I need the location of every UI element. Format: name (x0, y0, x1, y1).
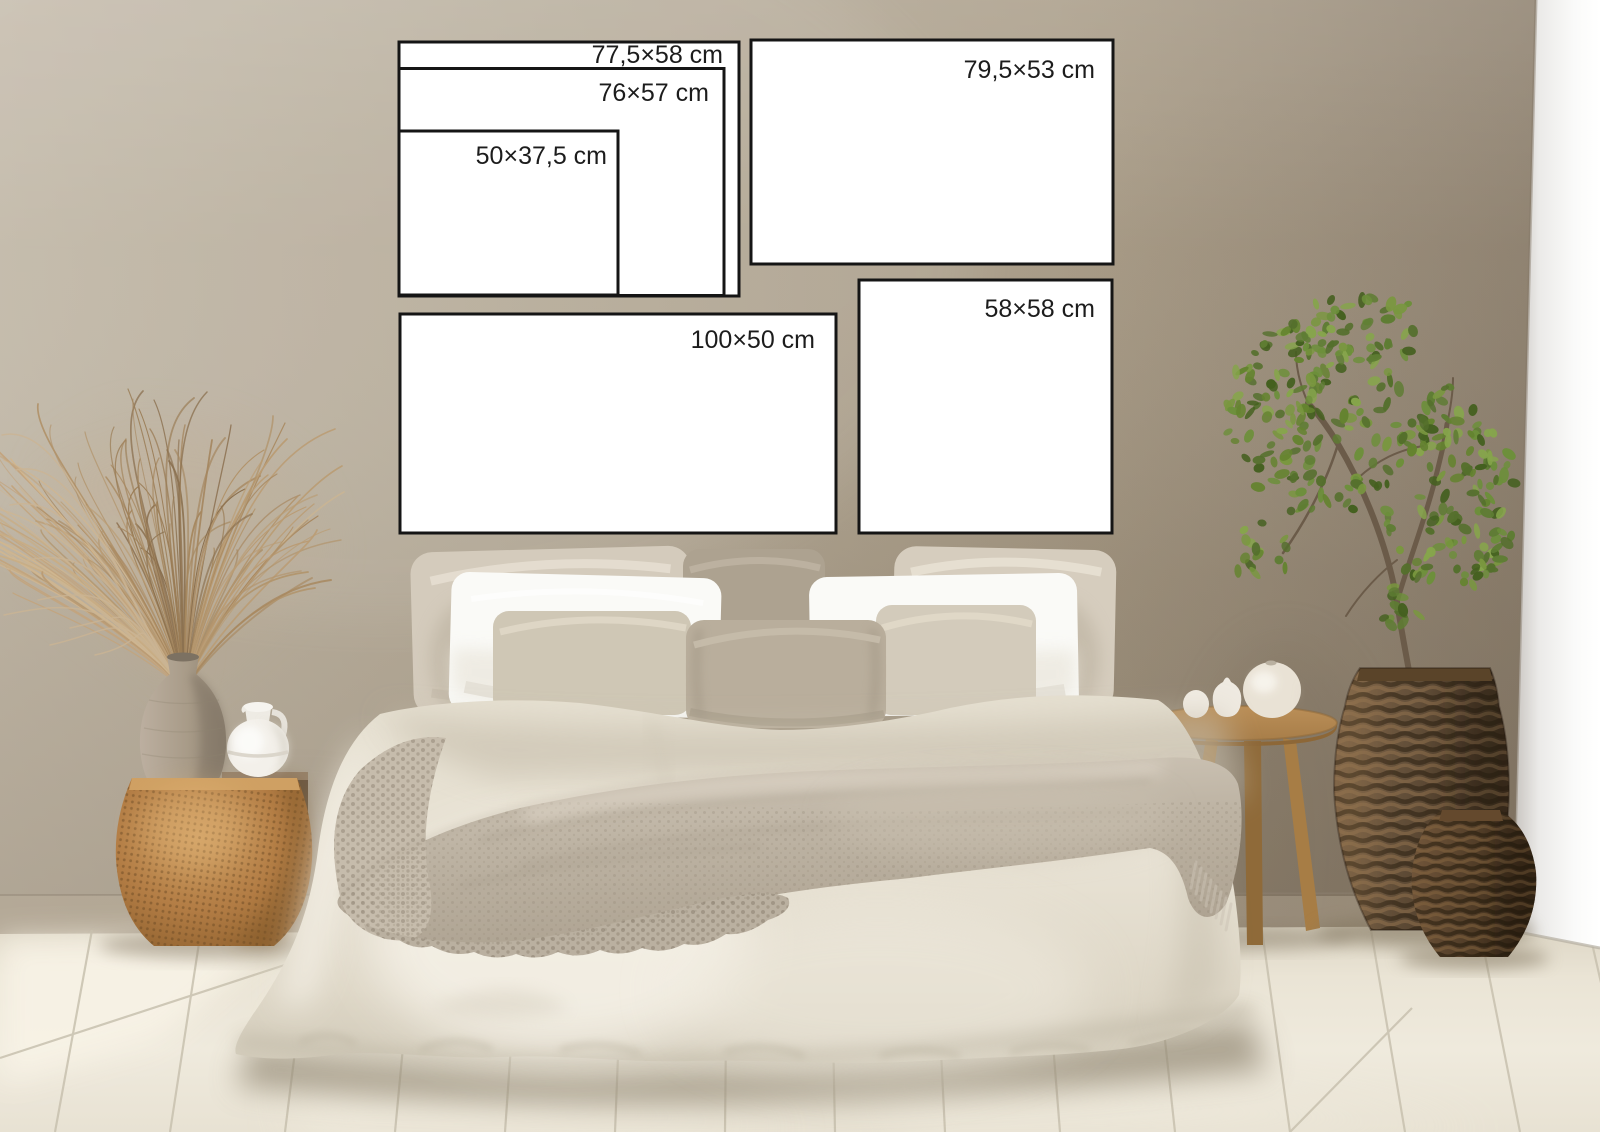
svg-text:77,5×58 cm: 77,5×58 cm (592, 41, 723, 69)
svg-text:76×57 cm: 76×57 cm (599, 79, 710, 107)
svg-text:100×50 cm: 100×50 cm (691, 326, 815, 354)
svg-text:58×58 cm: 58×58 cm (985, 295, 1096, 323)
svg-text:79,5×53 cm: 79,5×53 cm (964, 56, 1095, 84)
svg-text:50×37,5 cm: 50×37,5 cm (476, 142, 607, 170)
